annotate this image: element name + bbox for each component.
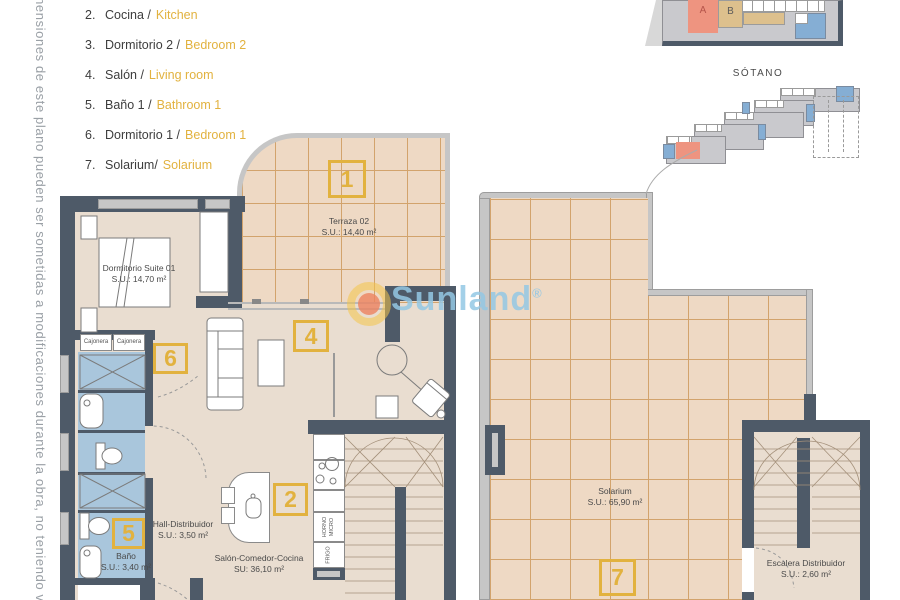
stair-divider [797, 438, 810, 548]
basement-blue-cell [742, 102, 750, 114]
basement-plan-thumbnail: SÓTANO [648, 58, 863, 170]
window [60, 512, 69, 545]
kitchen-counter [313, 490, 345, 512]
drawer-unit-label: Cajonera [114, 335, 144, 350]
watermark-logo-icon [347, 282, 391, 326]
unit-a: A [688, 0, 718, 33]
basement-salmon-room [676, 142, 700, 159]
room-below-bath [78, 584, 145, 600]
terrace-name: Terraza 02 [287, 216, 411, 227]
terrace-area: S.U.: 14,40 m² [287, 227, 411, 238]
kitchen-counter [313, 434, 345, 460]
solarium-area: S.U.: 65,90 m² [553, 497, 677, 508]
wall-divider [78, 390, 145, 393]
wall-divider [78, 510, 145, 513]
room-number-terrace: 1 [328, 160, 366, 198]
solarium-parapet [806, 289, 813, 399]
unit-b: B [718, 0, 743, 28]
window [205, 199, 230, 209]
site-plan-cells [740, 0, 825, 12]
master-bedroom-label: Dormitorio Suite 01 S.U.: 14,70 m² [77, 263, 201, 285]
master-bedroom-area: S.U.: 14,70 m² [77, 274, 201, 285]
oven-label: HORNO MICRO [322, 514, 336, 540]
bathroom-name: Baño [86, 551, 166, 562]
wall-segment [190, 578, 203, 600]
wall-segment [145, 330, 153, 426]
basement-blue-cell [663, 144, 675, 159]
unit-b-label: B [719, 1, 742, 17]
site-plan-thumbnail: A B [645, 0, 845, 52]
room-number-living: 4 [293, 320, 329, 352]
bathroom-label: Baño S.U.: 3,40 m² [86, 551, 166, 573]
kitchen-oven-cabinet: HORNO MICRO [313, 512, 345, 542]
side-disclaimer-text: imensiones de este plano pueden ser some… [33, 0, 48, 600]
terrace-label: Terraza 02 S.U.: 14,40 m² [287, 216, 411, 238]
stool [221, 487, 235, 504]
basement-dashed-area [813, 96, 859, 158]
basement-cells [754, 100, 784, 108]
solarium-parapet [646, 289, 813, 296]
solarium-floor [490, 198, 648, 600]
wall-segment [228, 210, 242, 304]
fridge-label: FRIGO [326, 542, 333, 568]
wall-divider [78, 472, 145, 475]
watermark-reg-icon: ® [532, 286, 543, 301]
solarium-label: Solarium S.U.: 65,90 m² [553, 486, 677, 508]
room-number-bathroom: 5 [112, 518, 145, 549]
stair-distributor-name: Escalera Distribuidor [744, 558, 868, 569]
window [60, 355, 69, 393]
site-plan-tan-block [743, 12, 785, 25]
living-room-area: SU: 36,10 m² [196, 564, 322, 575]
watermark-logo-core [358, 293, 380, 315]
site-plan-blue-notch [795, 13, 808, 24]
solarium-name: Solarium [553, 486, 677, 497]
basement-blue-cell [758, 124, 766, 140]
living-room-label: Salón-Comedor-Cocina SU: 36,10 m² [196, 553, 322, 575]
kitchen-hob [313, 460, 345, 490]
wall-segment [60, 578, 148, 585]
solarium-parapet [479, 196, 490, 600]
wall-segment [395, 487, 406, 600]
window [98, 199, 198, 209]
basement-dashed-line [828, 100, 829, 152]
window [60, 433, 69, 471]
drawer-unit: Cajonera [80, 334, 112, 351]
wall-segment [308, 420, 446, 434]
legend-item-solarium: 7.Solarium/Solarium [85, 158, 246, 172]
watermark-brand: Sunland [391, 280, 532, 318]
room-number-kitchen: 2 [273, 483, 308, 516]
basement-cells [694, 124, 722, 132]
stair-distributor-area: S.U.: 2,60 m² [744, 569, 868, 580]
basement-plan-title: SÓTANO [703, 68, 813, 79]
legend-item-kitchen: 2.Cocina /Kitchen [85, 8, 246, 22]
solarium-door-slot [492, 433, 498, 467]
legend-item-bedroom2: 3.Dormitorio 2 /Bedroom 2 [85, 38, 246, 52]
legend-item-bedroom1: 6.Dormitorio 1 /Bedroom 1 [85, 128, 246, 142]
wall-divider [78, 430, 145, 433]
basement-cells [780, 88, 816, 96]
drawer-unit-label: Cajonera [81, 335, 111, 350]
living-room-name: Salón-Comedor-Cocina [196, 553, 322, 564]
legend-item-bathroom1: 5.Baño 1 /Bathroom 1 [85, 98, 246, 112]
watermark: Sunland® [391, 280, 543, 319]
legend-item-livingroom: 4.Salón /Living room [85, 68, 246, 82]
stair-distributor-label: Escalera Distribuidor S.U.: 2,60 m² [744, 558, 868, 580]
drawer-unit: Cajonera [113, 334, 145, 351]
bathroom-area: S.U.: 3,40 m² [86, 562, 166, 573]
room-number-solarium: 7 [599, 559, 636, 596]
floorplan-page: imensiones de este plano pueden ser some… [0, 0, 900, 600]
wall-segment [444, 286, 456, 600]
legend: 2.Cocina /Kitchen 3.Dormitorio 2 /Bedroo… [85, 8, 246, 172]
basement-dashed-line [843, 100, 844, 152]
master-bedroom-name: Dormitorio Suite 01 [77, 263, 201, 274]
room-number-bedroom: 6 [153, 343, 188, 374]
unit-a-label: A [688, 0, 718, 16]
